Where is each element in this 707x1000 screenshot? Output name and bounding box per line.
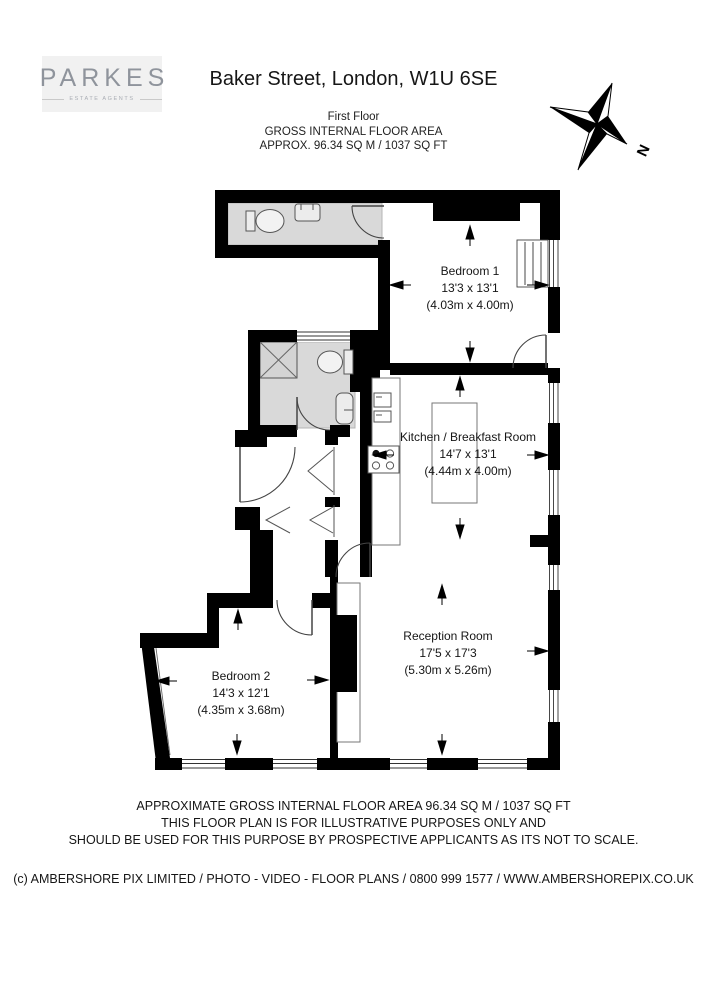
- room-dimensions-metric: (4.03m x 4.00m): [426, 298, 513, 312]
- room-dimensions-metric: (4.35m x 3.68m): [197, 703, 284, 717]
- bedroom2-door: [277, 600, 312, 635]
- room-name: Bedroom 2: [212, 669, 271, 683]
- room-dimensions-imperial: 14'7 x 13'1: [439, 447, 497, 461]
- north-arrow-icon: N: [550, 83, 652, 170]
- room-label-reception: Reception Room 17'5 x 17'3 (5.30m x 5.26…: [403, 629, 492, 677]
- floor-plan-page: { "header": { "logo": { "name": "PARKES"…: [0, 0, 707, 1000]
- room-label-kitchen: Kitchen / Breakfast Room 14'7 x 13'1 (4.…: [400, 430, 536, 478]
- room-name: Reception Room: [403, 629, 492, 643]
- sink-fixture-shower-room: [336, 393, 353, 424]
- room-label-bedroom1: Bedroom 1 13'3 x 13'1 (4.03m x 4.00m): [426, 264, 513, 312]
- toilet-fixture-shower-room: [318, 350, 354, 374]
- disclaimer-line2: THIS FLOOR PLAN IS FOR ILLUSTRATIVE PURP…: [0, 815, 707, 832]
- room-dimensions-imperial: 17'5 x 17'3: [419, 646, 477, 660]
- disclaimer: APPROXIMATE GROSS INTERNAL FLOOR AREA 96…: [0, 798, 707, 849]
- room-name: Bedroom 1: [441, 264, 500, 278]
- closet-bifold-doors: [266, 447, 334, 537]
- sink-fixture-bathroom: [295, 204, 320, 221]
- floor-plan-svg: N: [0, 0, 707, 1000]
- room-dimensions-imperial: 14'3 x 12'1: [212, 686, 270, 700]
- room-dimensions-metric: (4.44m x 4.00m): [424, 464, 511, 478]
- hallway-door: [240, 447, 295, 502]
- room-dimensions-imperial: 13'3 x 13'1: [441, 281, 499, 295]
- toilet-fixture-bathroom: [246, 210, 284, 233]
- room-label-bedroom2: Bedroom 2 14'3 x 12'1 (4.35m x 3.68m): [197, 669, 284, 717]
- compass-n-label: N: [632, 142, 652, 159]
- disclaimer-line3: SHOULD BE USED FOR THIS PURPOSE BY PROSP…: [0, 832, 707, 849]
- hob-fixture: [368, 446, 399, 473]
- copyright-line: (c) AMBERSHORE PIX LIMITED / PHOTO - VID…: [0, 872, 707, 886]
- room-name: Kitchen / Breakfast Room: [400, 430, 536, 444]
- disclaimer-line1: APPROXIMATE GROSS INTERNAL FLOOR AREA 96…: [0, 798, 707, 815]
- room-dimensions-metric: (5.30m x 5.26m): [404, 663, 491, 677]
